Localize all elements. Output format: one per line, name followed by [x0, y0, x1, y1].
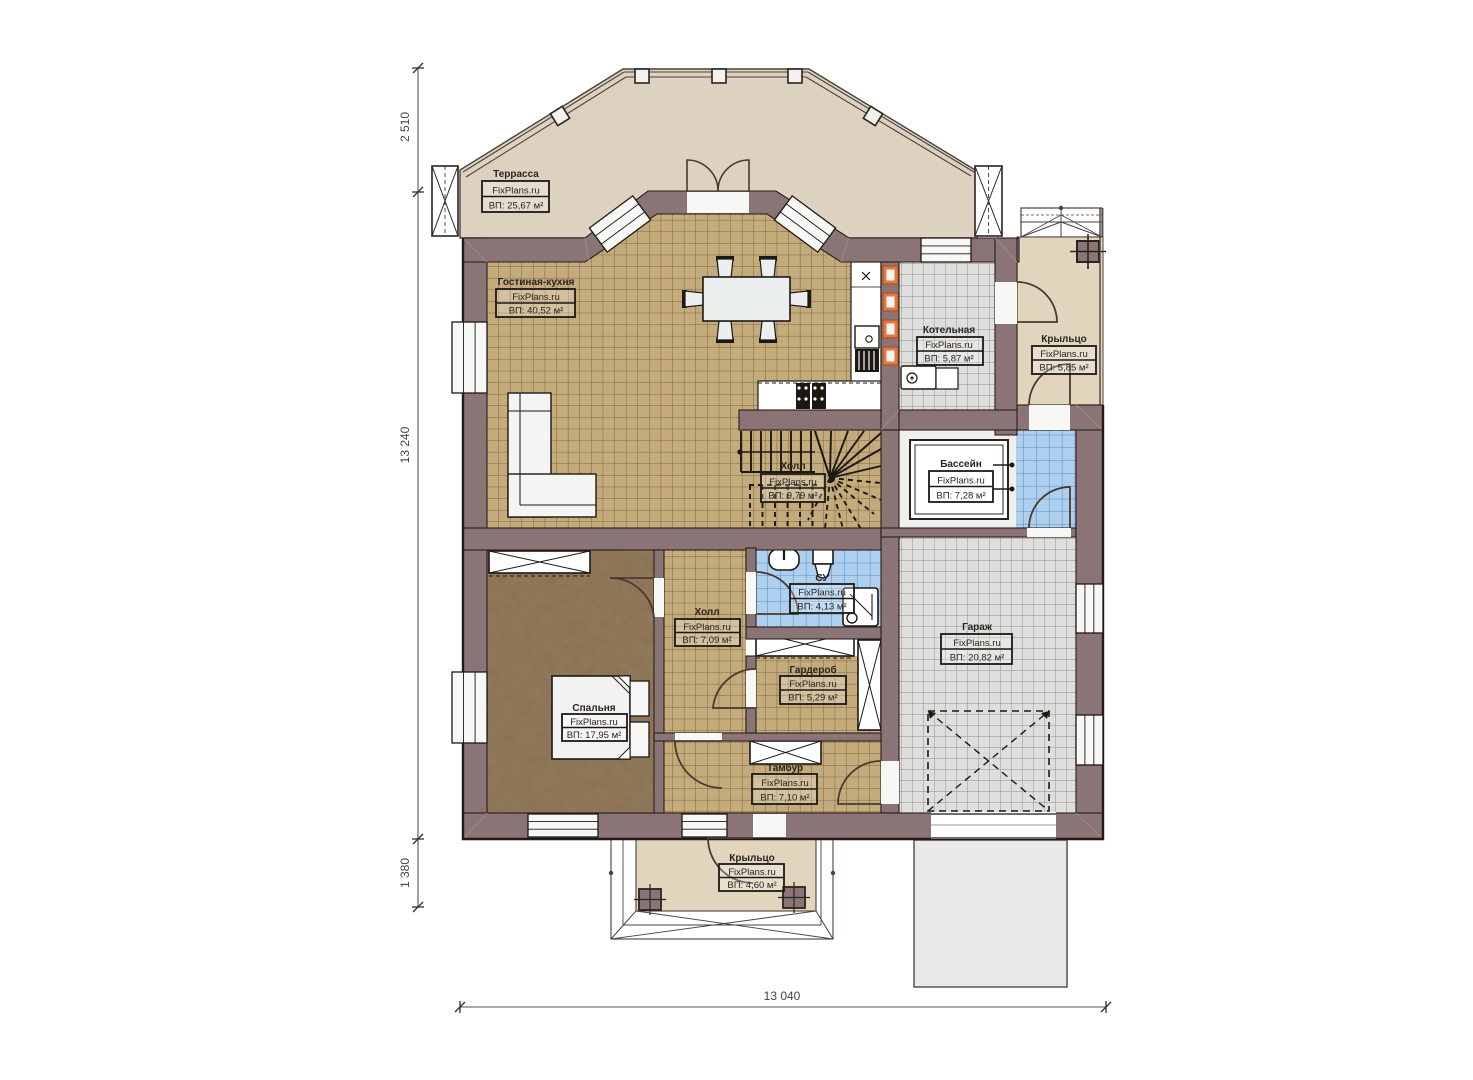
svg-text:Террасса: Террасса [493, 169, 539, 180]
svg-text:Крыльцо: Крыльцо [729, 853, 775, 864]
svg-text:FixPlans.ru: FixPlans.ru [937, 475, 985, 486]
svg-text:Крыльцо: Крыльцо [1041, 334, 1087, 345]
svg-text:ВП: 7,09 м²: ВП: 7,09 м² [682, 635, 731, 646]
svg-text:FixPlans.ru: FixPlans.ru [798, 588, 846, 599]
svg-text:2 510: 2 510 [398, 112, 412, 142]
svg-text:ВП: 25,67 м²: ВП: 25,67 м² [489, 200, 544, 211]
svg-text:ВП: 5,87 м²: ВП: 5,87 м² [924, 354, 973, 365]
svg-text:Гараж: Гараж [962, 622, 993, 633]
svg-text:FixPlans.ru: FixPlans.ru [728, 867, 776, 878]
svg-text:FixPlans.ru: FixPlans.ru [925, 340, 973, 351]
svg-text:FixPlans.ru: FixPlans.ru [570, 717, 618, 728]
svg-text:1 380: 1 380 [398, 858, 412, 888]
svg-text:FixPlans.ru: FixPlans.ru [512, 292, 560, 303]
svg-text:13 040: 13 040 [764, 989, 801, 1003]
svg-text:FixPlans.ru: FixPlans.ru [761, 778, 809, 789]
svg-text:ВП: 7,10 м²: ВП: 7,10 м² [760, 792, 809, 803]
svg-text:ВП: 40,52 м²: ВП: 40,52 м² [509, 306, 564, 317]
svg-text:Холл: Холл [780, 461, 805, 472]
svg-text:Гостиная-кухня: Гостиная-кухня [498, 277, 575, 288]
svg-text:ВП: 5,85 м²: ВП: 5,85 м² [1039, 363, 1088, 374]
svg-text:FixPlans.ru: FixPlans.ru [953, 638, 1001, 649]
svg-text:ВП: 17,95 м²: ВП: 17,95 м² [567, 730, 622, 741]
svg-text:FixPlans.ru: FixPlans.ru [1040, 349, 1088, 360]
svg-text:FixPlans.ru: FixPlans.ru [769, 477, 817, 488]
svg-text:Котельная: Котельная [923, 325, 976, 336]
svg-text:FixPlans.ru: FixPlans.ru [789, 679, 837, 690]
svg-text:FixPlans.ru: FixPlans.ru [492, 185, 540, 196]
svg-text:ВП: 20,82 м²: ВП: 20,82 м² [950, 652, 1005, 663]
svg-text:Холл: Холл [694, 607, 719, 618]
svg-text:ВП: 9,79 м²: ВП: 9,79 м² [768, 491, 817, 502]
svg-text:Бассейн: Бассейн [940, 459, 982, 470]
svg-text:Гардероб: Гардероб [789, 664, 836, 676]
svg-text:ВП: 7,28 м²: ВП: 7,28 м² [936, 490, 985, 501]
svg-text:Тамбур: Тамбур [767, 762, 803, 774]
svg-text:ВП: 4,13 м²: ВП: 4,13 м² [797, 602, 846, 613]
svg-text:ВП: 4,60 м²: ВП: 4,60 м² [727, 880, 776, 891]
svg-text:Спальня: Спальня [572, 703, 615, 714]
svg-text:ВП: 5,29 м²: ВП: 5,29 м² [788, 693, 837, 704]
svg-text:FixPlans.ru: FixPlans.ru [683, 622, 731, 633]
svg-text:13 240: 13 240 [398, 426, 412, 463]
svg-text:СУ: СУ [815, 573, 829, 584]
